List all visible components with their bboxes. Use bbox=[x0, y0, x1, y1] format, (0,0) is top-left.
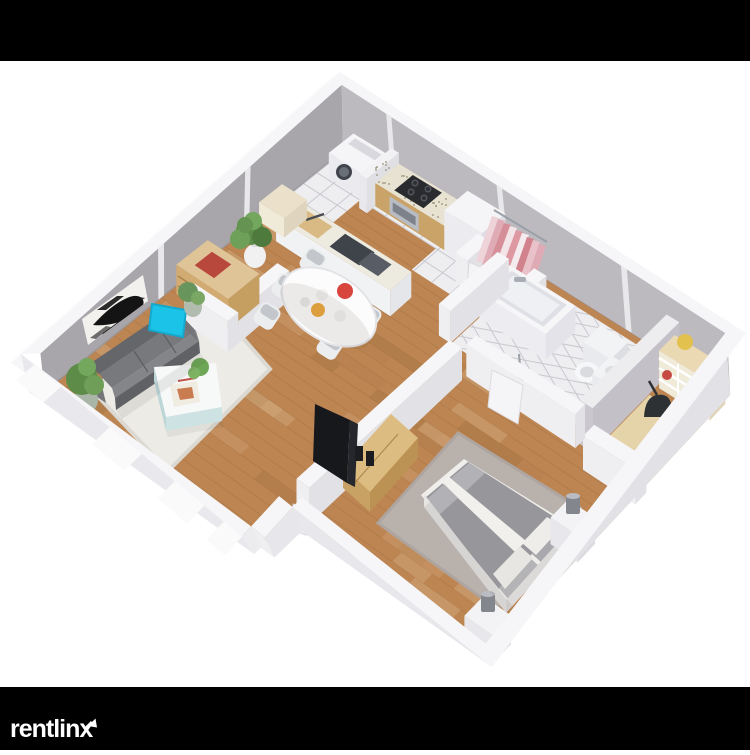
svg-text:rentlinx: rentlinx bbox=[10, 715, 93, 743]
